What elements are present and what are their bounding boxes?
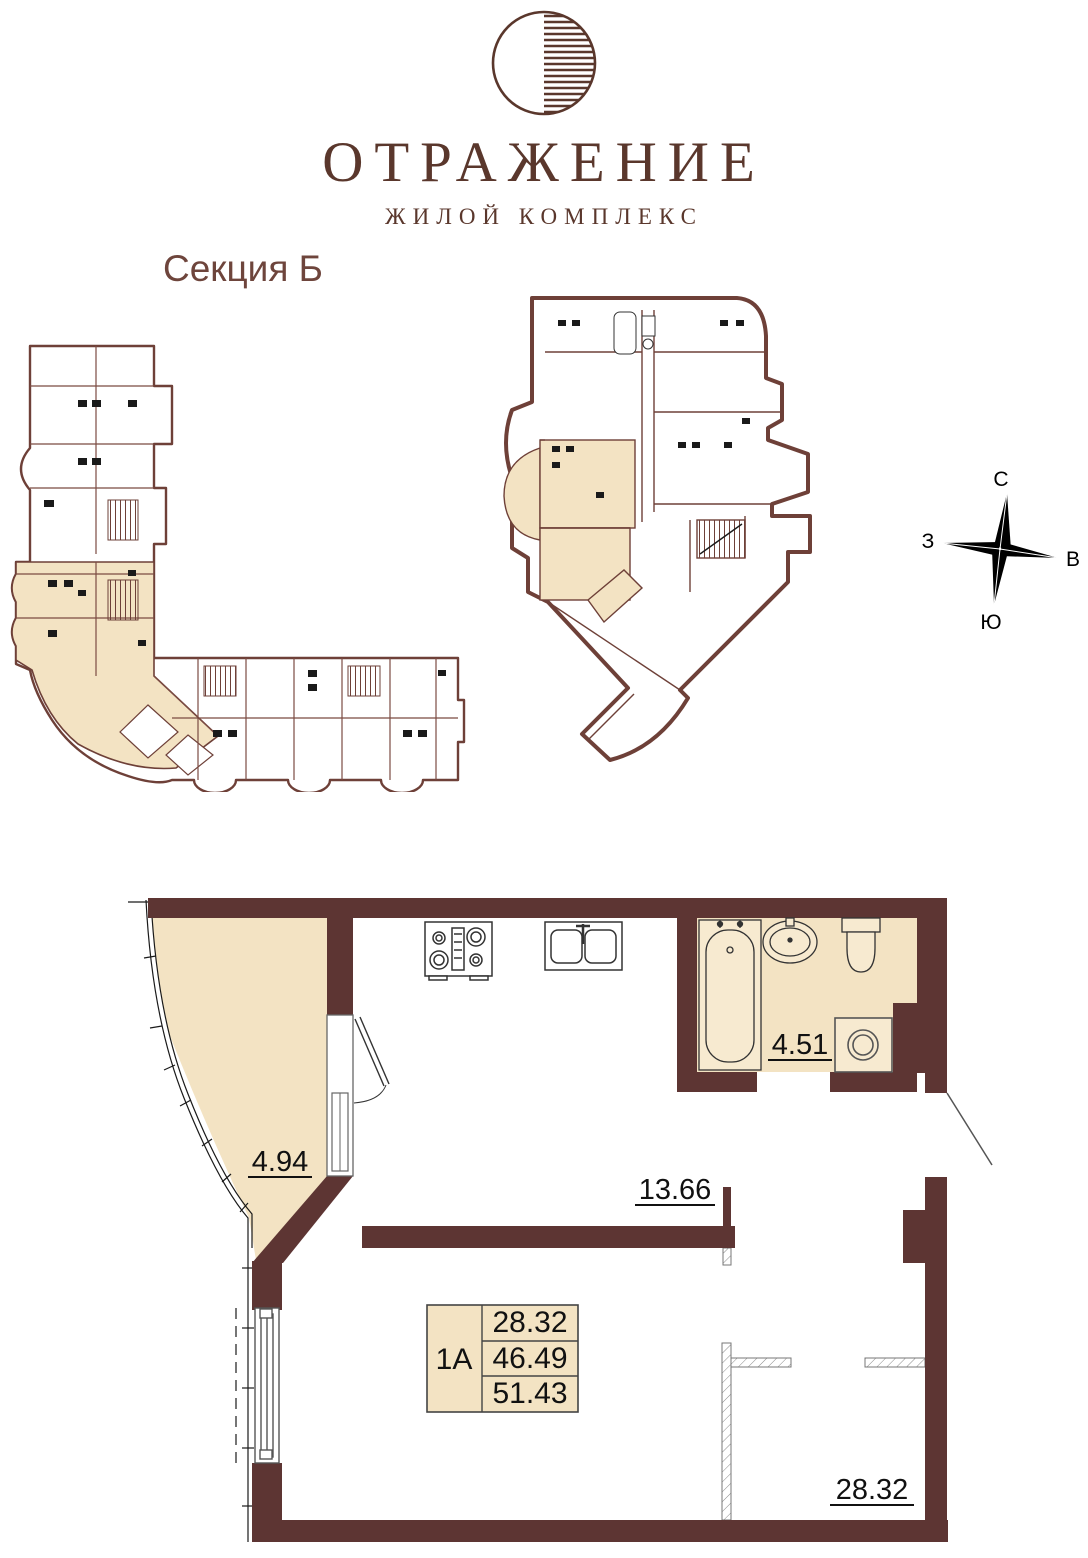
section-label: Секция Б — [163, 248, 323, 290]
unit-area: 46.49 — [492, 1342, 567, 1375]
section-stairwell — [697, 520, 745, 558]
washing-machine-icon — [835, 1018, 892, 1072]
entrance-door-line — [947, 1093, 992, 1165]
balcony-door-icon — [327, 1015, 389, 1176]
complex-subtitle: ЖИЛОЙ КОМПЛЕКС — [0, 204, 1088, 230]
area-label-living-room: 28.32 — [836, 1474, 909, 1506]
unit-number: 1А — [436, 1343, 473, 1376]
area-label-balcony: 4.94 — [252, 1146, 308, 1178]
building-overview-plan — [8, 340, 468, 792]
apartment-floor-plan: 4.94 4.51 13.66 28.32 1А 28.32 46.49 51.… — [118, 888, 998, 1553]
kitchen-sink-icon — [545, 922, 622, 970]
logo: ОТРАЖЕНИЕ ЖИЛОЙ КОМПЛЕКС — [0, 8, 1088, 230]
stove-icon — [425, 922, 492, 980]
unit-living-area: 28.32 — [492, 1306, 567, 1339]
bathtub-icon — [699, 920, 761, 1070]
compass-rose: С Ю З В — [920, 466, 1085, 636]
area-label-kitchen: 13.66 — [639, 1174, 712, 1206]
compass-south-label: Ю — [980, 611, 1001, 634]
page: ОТРАЖЕНИЕ ЖИЛОЙ КОМПЛЕКС Секция Б — [0, 0, 1088, 1558]
section-bath-fixtures — [614, 312, 655, 354]
window-icon — [255, 1308, 279, 1463]
highlighted-apartment — [504, 440, 642, 622]
unit-total-area: 51.43 — [492, 1377, 567, 1410]
logo-reflection-icon — [489, 8, 599, 118]
info-table: 1А 28.32 46.49 51.43 — [427, 1305, 578, 1412]
complex-title: ОТРАЖЕНИЕ — [0, 130, 1088, 195]
area-label-bathroom: 4.51 — [772, 1029, 828, 1061]
compass-north-label: С — [993, 468, 1008, 491]
compass-star-icon — [942, 493, 1058, 605]
section-floor-plan — [492, 292, 814, 790]
compass-west-label: З — [922, 530, 935, 553]
compass-east-label: В — [1066, 548, 1080, 571]
